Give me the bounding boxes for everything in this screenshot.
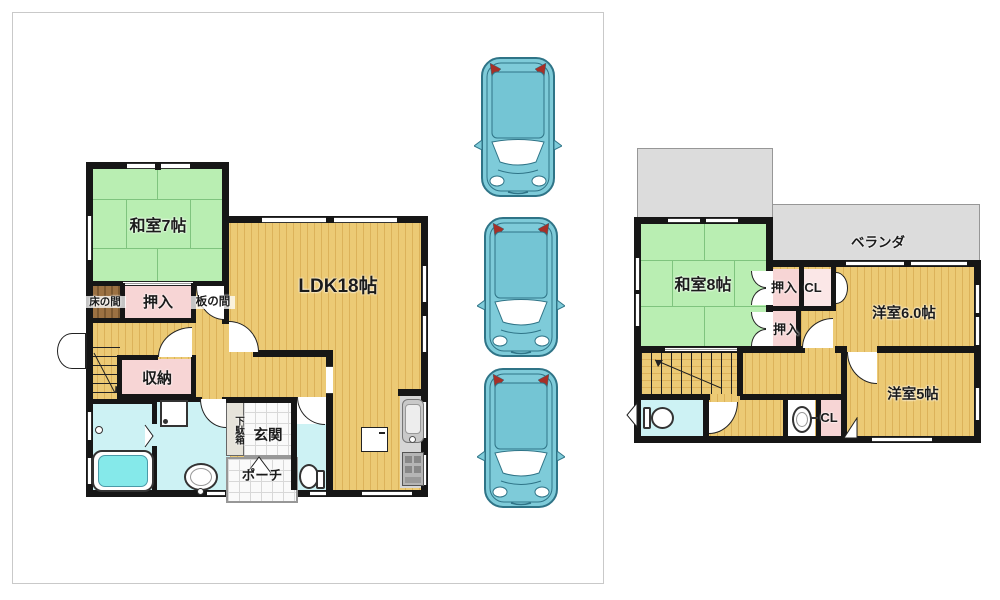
window [87,412,92,440]
wall [634,394,710,400]
tatami-line [704,222,705,260]
stove-burner [414,466,421,473]
wall [253,350,333,357]
window [422,266,427,302]
window [975,285,980,313]
toilet-tank [643,407,651,429]
wall [783,394,788,438]
car-icon [474,54,562,200]
window-post [326,216,334,223]
window [635,294,640,326]
car-icon [477,214,565,360]
kitchen-sink-basin [405,404,421,434]
window [975,388,980,420]
wall [117,355,158,360]
tatami-line [704,306,705,350]
window-post [155,162,161,170]
shower-icon [95,426,103,434]
room-label-washitsu8: 和室8帖 [655,277,751,295]
window [310,491,326,496]
room-label-closet-upper: CL [800,281,826,296]
room-label-tokonoma: 床の間 [84,296,126,308]
toilet-tank [316,470,325,489]
wall [222,397,294,403]
washbasin-drain [197,488,204,495]
wall [737,352,743,396]
floor1-stairs [90,347,120,399]
wall [398,389,428,396]
wall [191,355,196,399]
wall [841,352,847,402]
window [334,217,397,223]
window [87,216,92,260]
window-post [904,260,911,267]
room-label-western6: 洋室6.0帖 [862,306,946,323]
wall [222,162,229,220]
wall [766,306,836,311]
wall [740,394,847,400]
floor2-stairs [641,352,737,394]
stove-grill [405,477,421,483]
window [872,437,932,442]
tatami-line [93,199,224,200]
bathtub-water [98,455,148,487]
stove-burner [414,456,421,463]
sliding-door [123,281,193,286]
wall [86,281,123,286]
car-icon [477,365,565,511]
stairs-arrow [641,352,737,394]
window [846,261,904,266]
wall [86,162,93,497]
wall [152,401,157,424]
room-label-oshiire-upper: 押入 [767,281,801,296]
floor-hatch [361,427,388,452]
room-label-oshiire: 押入 [133,294,183,311]
tatami-line [157,169,158,199]
room-label-western5: 洋室5帖 [877,387,949,404]
room-label-porch: ポーチ [236,468,288,484]
room-label-washitsu7: 和室7帖 [110,218,206,236]
room-label-veranda: ベランダ [845,235,911,251]
room-label-getabako: 下駄箱 [228,405,243,455]
tatami-line [157,248,158,283]
wall [291,397,297,490]
window [207,491,225,496]
window [668,218,702,223]
room-label-ldk: LDK18帖 [286,276,390,298]
room-label-closet-lower: CL [815,411,843,426]
exterior-door-arc [57,333,87,369]
room-label-itanoma: 板の間 [191,296,235,309]
wall [877,346,981,353]
stairs-arrow [90,347,120,399]
floor2-roof-area [637,148,773,218]
room-label-genkan: 玄関 [249,428,287,445]
tatami-line [93,248,224,249]
stove-burner [405,466,412,473]
toilet-bowl [651,407,674,429]
closet-door-triangle [843,417,859,439]
window [635,258,640,290]
window [706,218,738,223]
stove-burner [405,456,412,463]
floor-hatch-handle [379,432,385,434]
window [422,316,427,352]
wall [86,399,157,404]
sliding-door [665,347,737,352]
washer-dot [163,419,168,424]
window [362,491,412,496]
wall [86,318,196,323]
wall [117,355,122,399]
folding-door [144,424,154,448]
washbasin-bowl [190,468,212,486]
window [975,317,980,345]
window [911,261,967,266]
exterior-door-triangle [626,402,639,428]
tatami-line [641,260,766,261]
room-label-shuno: 収納 [132,370,182,387]
room-label-oshiire-lower: 押入 [768,323,804,338]
wall [117,394,196,399]
window [262,217,326,223]
washbasin-bowl [796,412,808,427]
kitchen-faucet [409,436,416,443]
cased-opening [326,366,333,394]
floorplan-page: { "floor1": { "washitsu_label": "和室7帖", … [0,0,1000,600]
